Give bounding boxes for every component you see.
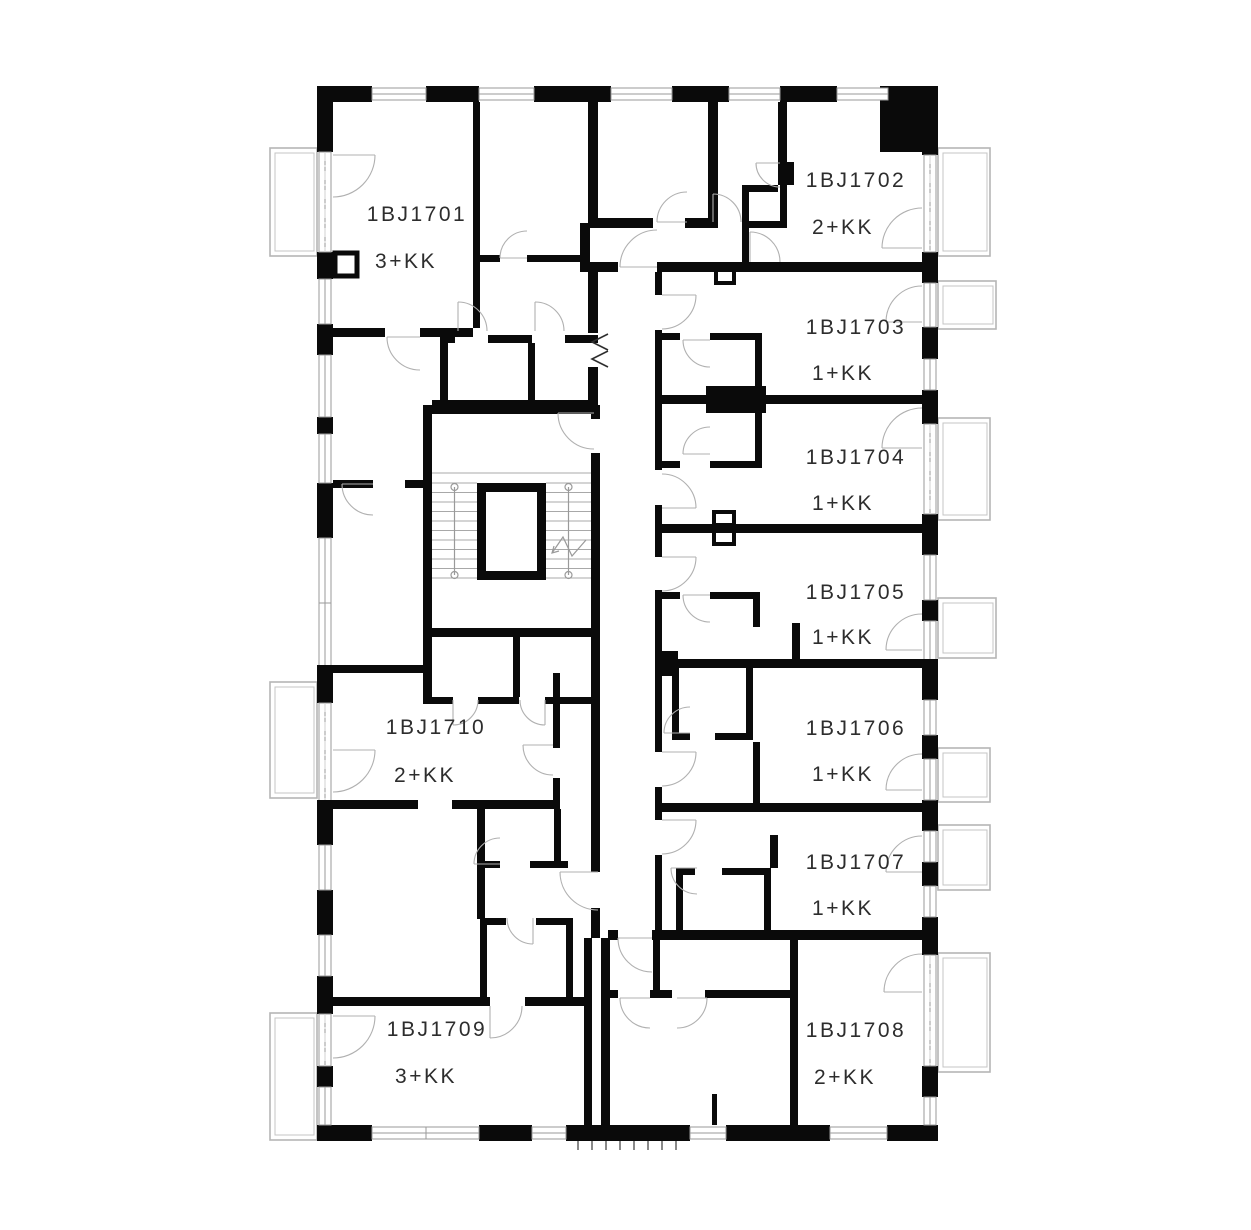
unit-1707-type: 1+KK (812, 897, 874, 920)
stair-core (482, 488, 542, 576)
unit-1701-type: 3+KK (375, 250, 437, 273)
unit-1704-id: 1BJ1704 (806, 446, 906, 469)
balconies (270, 148, 996, 1140)
unit-1709-id: 1BJ1709 (387, 1018, 487, 1041)
unit-1705-id: 1BJ1705 (806, 581, 906, 604)
unit-1707-id: 1BJ1707 (806, 851, 906, 874)
unit-1705-type: 1+KK (812, 626, 874, 649)
unit-1710-type: 2+KK (394, 764, 456, 787)
unit-1706-type: 1+KK (812, 763, 874, 786)
unit-1702-type: 2+KK (812, 216, 874, 239)
floor-plan-svg: 1BJ1701 3+KK 1BJ1702 2+KK 1BJ1703 1+KK 1… (0, 0, 1251, 1230)
unit-1701-id: 1BJ1701 (367, 203, 467, 226)
outer-wall-left (317, 86, 333, 1141)
floor-plan-page: 1BJ1701 3+KK 1BJ1702 2+KK 1BJ1703 1+KK 1… (0, 0, 1251, 1230)
unit-1703-type: 1+KK (812, 362, 874, 385)
unit-1708-type: 2+KK (814, 1066, 876, 1089)
door-swings (333, 155, 922, 1058)
unit-1703-id: 1BJ1703 (806, 316, 906, 339)
unit-1709-type: 3+KK (395, 1065, 457, 1088)
unit-1702-id: 1BJ1702 (806, 169, 906, 192)
outer-wall-right (922, 86, 938, 1141)
outer-wall-top (318, 86, 938, 152)
unit-1708-id: 1BJ1708 (806, 1019, 906, 1042)
staircase (432, 473, 591, 579)
unit-1704-type: 1+KK (812, 492, 874, 515)
unit-1706-id: 1BJ1706 (806, 717, 906, 740)
facade-ticks (578, 1141, 676, 1150)
outer-wall-bottom (318, 1125, 938, 1150)
unit-1710-id: 1BJ1710 (386, 716, 486, 739)
